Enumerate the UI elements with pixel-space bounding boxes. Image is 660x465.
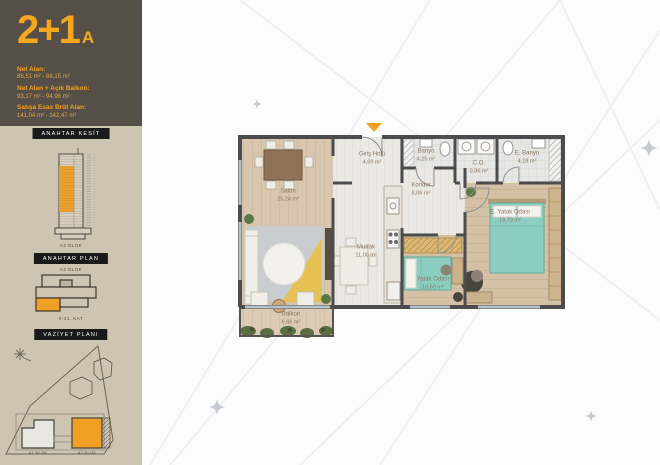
key-plan-block-label: A2 BLOK: [0, 267, 142, 272]
stat-value: 93,17 m² - 94,96 m²: [17, 94, 137, 101]
key-plan-drawing: [26, 274, 116, 314]
unit-type-title: 2+1A: [17, 8, 94, 53]
section-title-anahtar-plan: ANAHTAR PLAN: [34, 253, 108, 264]
unit-variant: A: [82, 28, 94, 47]
building-section-drawing: [31, 146, 111, 242]
site-plan-label-a2: A2 BLOK: [78, 450, 97, 455]
room-label-yatak-odasi: Yatak Odası 10,68 m²: [417, 277, 450, 292]
stat-label: Satışa Esas Brüt Alan:: [17, 104, 137, 112]
stat-label: Net Alan:: [17, 66, 137, 74]
area-stats: Net Alan: 86,51 m² - 88,15 m² Net Alan +…: [17, 62, 137, 120]
room-label-giris-holu: Giriş Holü 4,69 m²: [359, 152, 385, 167]
unit-type: 2+1: [17, 8, 79, 52]
stat-value: 141,04 m² - 142,47 m²: [17, 113, 137, 120]
site-plan-label-a1: A1 BLOK: [29, 450, 48, 455]
room-label-e-yatak-odasi: E. Yatak Odası 16,73 m²: [490, 210, 530, 225]
site-plan-drawing: [0, 344, 142, 465]
room-label-e-banyo: E. Banyo 4,18 m²: [515, 151, 539, 166]
key-plan-floor-label: 0-31. KAT: [0, 316, 142, 321]
stat-value: 86,51 m² - 88,15 m²: [17, 74, 137, 81]
room-label-banyo: Banyo 4,25 m²: [417, 149, 436, 164]
north-arrow-icon: [14, 348, 31, 361]
room-label-balkon: Balkon 6,66 m²: [282, 312, 301, 327]
room-label-salon: Salon 25,24 m²: [277, 189, 299, 204]
sidebar: 2+1A Net Alan: 86,51 m² - 88,15 m² Net A…: [0, 0, 142, 465]
room-label-co: C.O. 0,86 m²: [470, 161, 489, 176]
stat-label: Net Alan + Açık Balkon:: [17, 85, 137, 93]
key-section-caption: A2 BLOK: [0, 243, 142, 248]
section-title-vaziyet-plani: VAZİYET PLANI: [34, 329, 107, 340]
brochure-page: Salon 25,24 m² Giriş Holü 4,69 m² Mutfak…: [0, 0, 660, 465]
section-title-anahtar-kesit: ANAHTAR KESİT: [33, 128, 110, 139]
room-label-mutfak: Mutfak 11,00 m²: [355, 245, 376, 260]
unit-header: 2+1A Net Alan: 86,51 m² - 88,15 m² Net A…: [0, 0, 142, 126]
room-label-koridor: Koridor 8,06 m²: [411, 183, 430, 198]
